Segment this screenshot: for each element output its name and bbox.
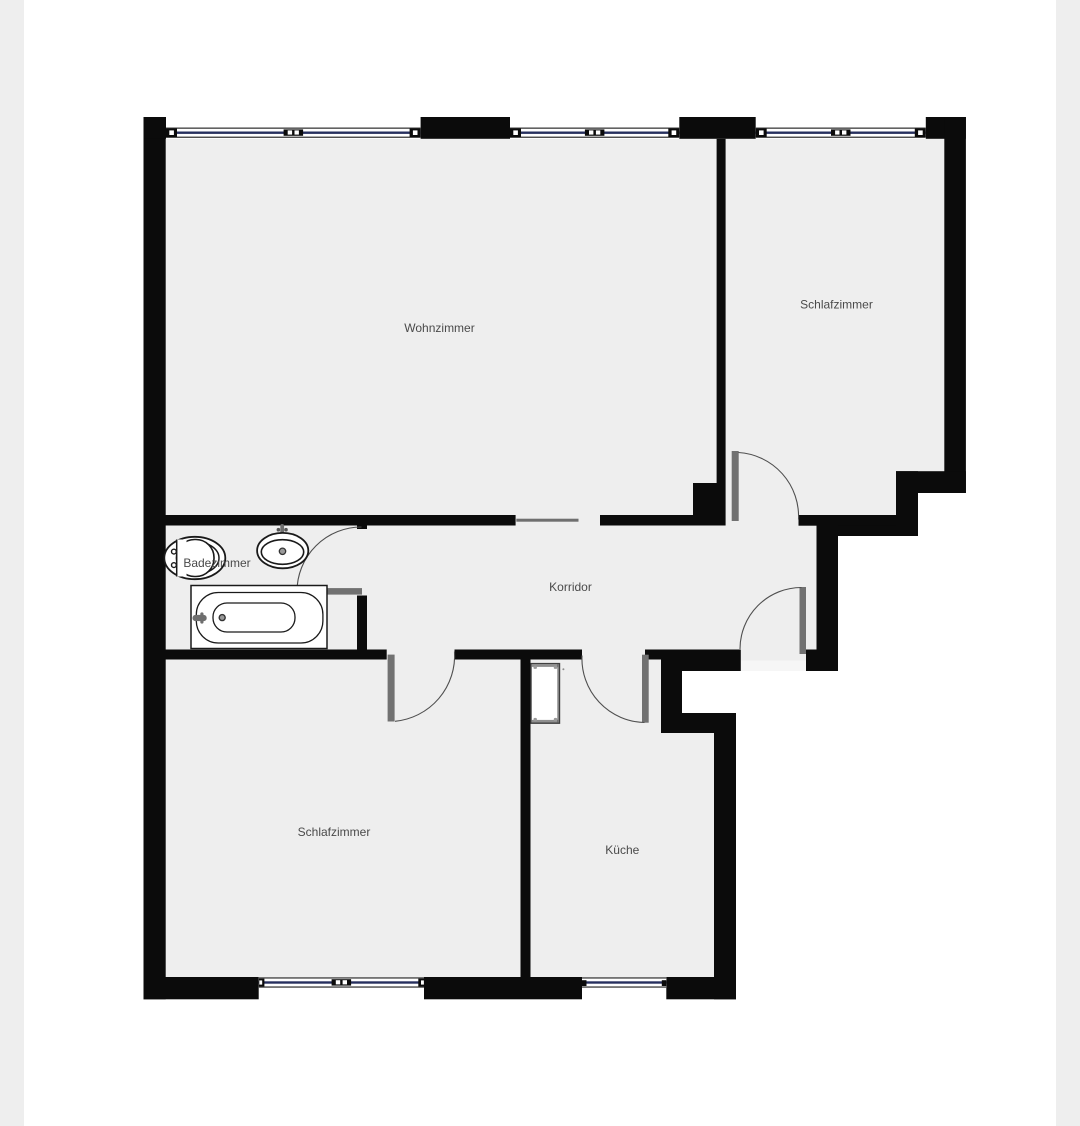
svg-text:Schlafzimmer: Schlafzimmer (298, 825, 371, 839)
svg-text:Schlafzimmer: Schlafzimmer (800, 298, 873, 312)
svg-text:Wohnzimmer: Wohnzimmer (404, 321, 474, 335)
svg-text:Badezimmer: Badezimmer (183, 556, 250, 570)
svg-text:Korridor: Korridor (549, 580, 592, 594)
svg-text:Küche: Küche (605, 843, 639, 857)
